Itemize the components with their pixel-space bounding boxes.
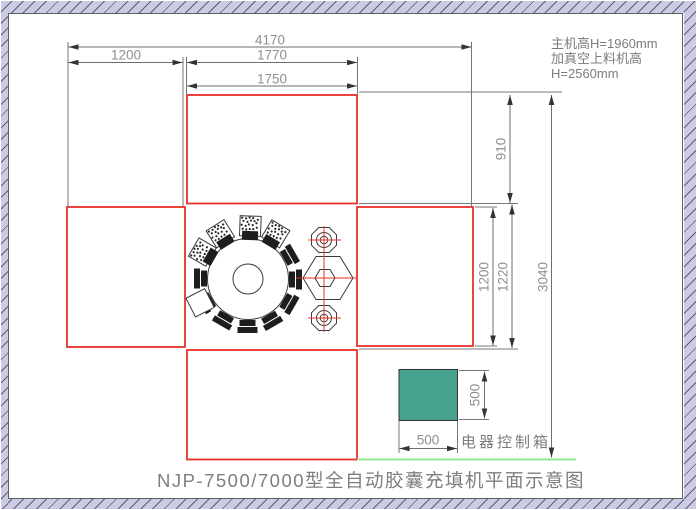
dim-500h-label: 500 — [417, 433, 440, 447]
control-box-label: 电器控制箱 — [461, 431, 551, 452]
module-bottom — [187, 350, 357, 460]
height-note-line3: H=2560mm — [551, 66, 658, 81]
extension-lines — [68, 42, 562, 453]
turntable — [208, 239, 289, 320]
centerlines — [296, 226, 357, 332]
dim-910-label: 910 — [494, 138, 508, 161]
module-left — [67, 207, 185, 347]
plan-schematic: 4170 1200 1770 1750 910 1200 1220 3040 5… — [0, 0, 697, 510]
dim-3040-label: 3040 — [536, 262, 550, 292]
dim-4170-label: 4170 — [255, 33, 285, 47]
dim-1770-label: 1770 — [257, 48, 287, 62]
capsule-filling-machine — [186, 216, 357, 333]
dim-1200v-label: 1200 — [477, 262, 491, 292]
vacuum-feeder-unit — [303, 228, 353, 331]
height-note: 主机高H=1960mm 加真空上料机高 H=2560mm — [551, 36, 658, 81]
dim-500v-label: 500 — [468, 384, 482, 407]
dim-1220-label: 1220 — [496, 262, 510, 292]
dim-1750-label: 1750 — [257, 72, 287, 86]
turntable-hub — [233, 264, 263, 294]
module-right — [357, 207, 473, 346]
height-note-line2: 加真空上料机高 — [551, 51, 658, 66]
dim-1200h-label: 1200 — [111, 48, 141, 62]
hopper-stations — [188, 216, 289, 268]
control-box — [399, 370, 458, 421]
hopper-station — [239, 216, 261, 241]
module-top — [187, 95, 357, 204]
drawing-title: NJP-7500/7000型全自动胶囊充填机平面示意图 — [157, 467, 585, 493]
height-note-line1: 主机高H=1960mm — [551, 36, 658, 51]
